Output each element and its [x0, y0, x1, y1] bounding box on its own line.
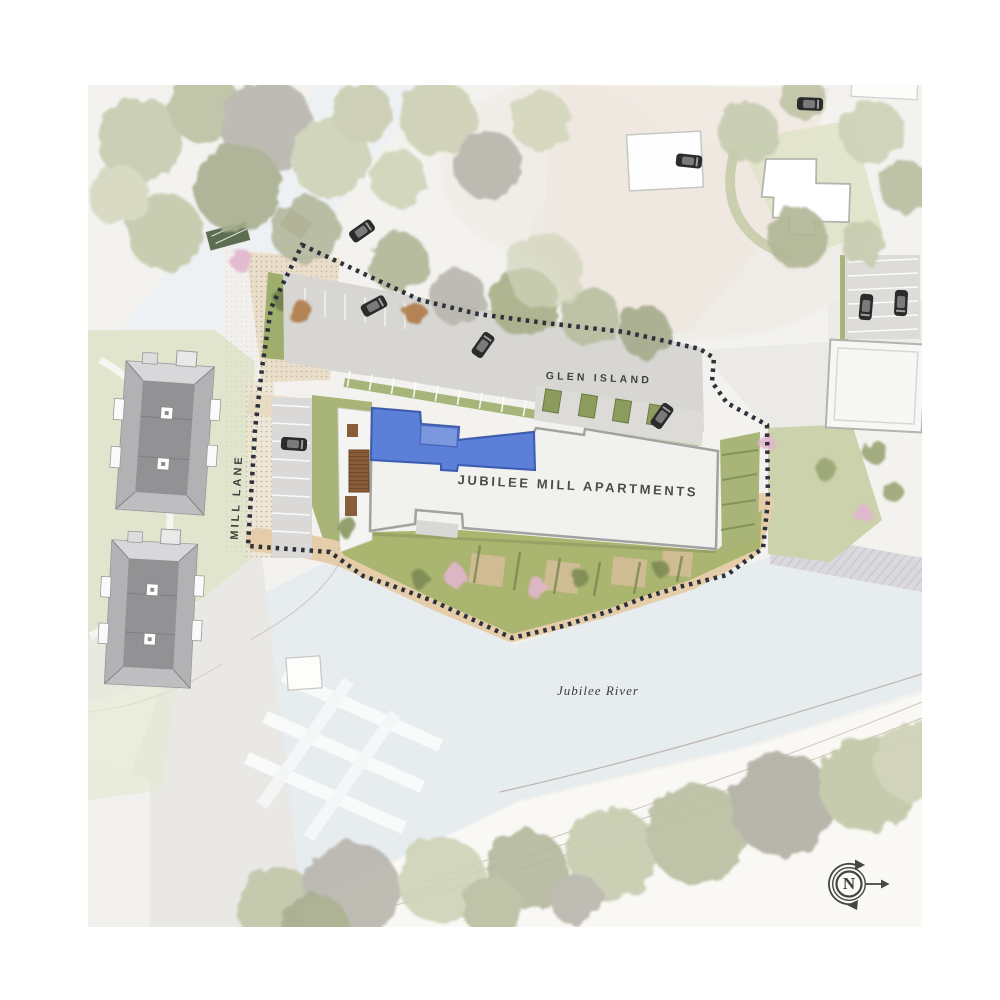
river-label: Jubilee River — [557, 683, 639, 699]
map-graphics — [88, 85, 922, 927]
site-plan-page: JUBILEE MILL APARTMENTS GLEN ISLAND MILL… — [0, 0, 1000, 1000]
compass-arc-arrowhead-top — [855, 860, 865, 871]
compass-arc-arrowhead-bottom — [847, 900, 858, 910]
compass-north-letter: N — [843, 874, 855, 894]
north-arrow-icon — [881, 880, 890, 889]
north-compass: N — [820, 854, 890, 914]
site-plan-map — [88, 85, 922, 927]
